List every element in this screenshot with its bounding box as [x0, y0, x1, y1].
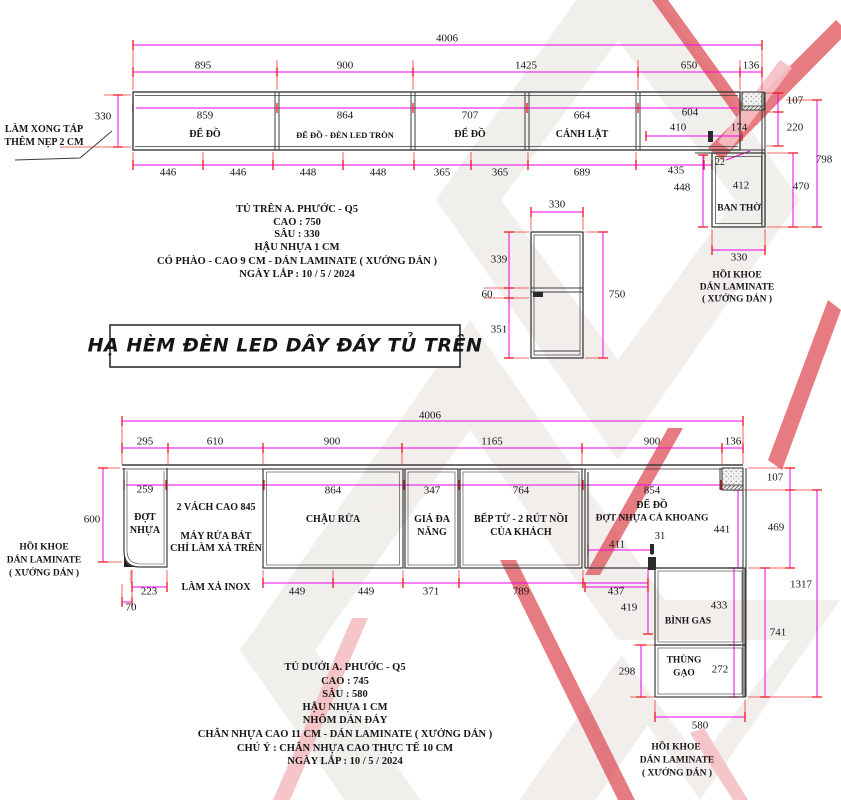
technical-drawing-canvas: 40068959001425650136330LÀM XONG TÁPTHÊM … — [0, 0, 841, 800]
altar-note-line3: ( XƯỞNG DÁN ) — [702, 295, 772, 305]
upper-dim-seg-5: 136 — [743, 61, 760, 72]
lower-comp4-name-line2: CỦA KHÁCH — [490, 528, 551, 538]
lower-comp5-width: 854 — [644, 486, 661, 497]
upper-comp3-width: 707 — [462, 111, 479, 122]
gas-dim-433: 433 — [711, 601, 728, 612]
upper-spec-line1: TỦ TRÊN A. PHƯỚC - Q5 — [236, 205, 358, 216]
lower-spec-line6: CHÂN NHỰA CAO 11 CM - DÁN LAMINATE ( XƯỞ… — [198, 730, 492, 741]
upper-dim-410: 410 — [670, 123, 687, 134]
side-cab-dim-60: 60 — [482, 290, 493, 301]
upper-bottom-dim-6: 365 — [492, 168, 509, 179]
upper-comp4-width: 664 — [574, 111, 591, 122]
lower-spec-line1: TỦ DƯỚI A. PHƯỚC - Q5 — [284, 663, 405, 674]
lower-dim-seg-6: 136 — [725, 437, 742, 448]
lower-dim-seg-2: 610 — [207, 437, 224, 448]
upper-note-line1: LÀM XONG TÁP — [5, 125, 83, 135]
lower-dim-total: 4006 — [419, 411, 441, 422]
lower-gap-note-line3: CHỈ LÀM XẢ TRÊN — [170, 544, 262, 554]
side-cab-dim-750: 750 — [609, 290, 626, 301]
lower-gap-note-line2: MÁY RỬA BÁT — [181, 532, 252, 542]
lower-comp4-width: 764 — [513, 486, 530, 497]
lower-bottom-dim-5: 437 — [608, 587, 625, 598]
lower-dim-600: 600 — [84, 515, 101, 526]
annotation-labels: 40068959001425650136330LÀM XONG TÁPTHÊM … — [0, 0, 841, 800]
lower-dim-seg-4: 1165 — [481, 437, 503, 448]
lower-spec-line5: NHÔM DÁN ĐÁY — [303, 716, 388, 727]
upper-note-line2: THÊM NẸP 2 CM — [4, 138, 83, 148]
gas-box-name: BÌNH GAS — [665, 617, 711, 627]
altar-dim-412: 412 — [733, 181, 750, 192]
lower-comp3-name-line2: NĂNG — [417, 528, 446, 538]
lower-comp1-width: 259 — [137, 485, 154, 496]
upper-dim-seg-1: 895 — [195, 61, 212, 72]
lower-dim-223: 223 — [141, 587, 158, 598]
altar-dim-330: 330 — [731, 253, 748, 264]
lower-right-dim-741: 741 — [770, 628, 787, 639]
lower-spec-line2: CAO : 745 — [321, 677, 369, 688]
altar-name: BAN THỜ — [717, 204, 760, 214]
upper-dim-seg-4: 650 — [681, 61, 698, 72]
upper-dim-total: 4006 — [436, 34, 458, 45]
upper-dim-22: 22 — [715, 158, 725, 168]
lower-right-dim-1317: 1317 — [790, 580, 812, 591]
upper-bottom-dim-3: 448 — [300, 168, 317, 179]
lower-bottom-dim-1: 449 — [289, 587, 306, 598]
lower-dim-580: 580 — [692, 721, 709, 732]
lower-spec-line4: HẬU NHỰA 1 CM — [302, 703, 387, 714]
upper-spec-line5: CÓ PHÀO - CAO 9 CM - DÁN LAMINATE ( XƯỞN… — [157, 257, 437, 268]
lower-comp4-name-line1: BẾP TỪ - 2 RÚT NỒI — [474, 515, 568, 525]
rice-box-name-line2: GẠO — [673, 669, 695, 679]
lower-left-note-line1: HỒI KHOE — [19, 543, 68, 553]
lower-comp2-name: CHẬU RỬA — [306, 515, 360, 525]
altar-note-line2: DÁN LAMINATE — [700, 283, 775, 293]
upper-spec-line2: CAO : 750 — [273, 218, 321, 229]
drawing-title: HẠ HÈM ĐÈN LED DÂY ĐÁY TỦ TRÊN — [88, 337, 483, 356]
lower-right-note-line2: DÁN LAMINATE — [640, 756, 715, 766]
upper-spec-line4: HẬU NHỰA 1 CM — [254, 243, 339, 254]
lower-bottom-dim-2: 449 — [358, 587, 375, 598]
lower-comp3-width: 347 — [424, 486, 441, 497]
upper-spec-line3: SÂU : 330 — [274, 230, 320, 241]
rice-dim-272: 272 — [712, 665, 729, 676]
lower-left-note-line3: ( XƯỞNG DÁN ) — [9, 569, 79, 579]
lower-dim-419: 419 — [621, 603, 638, 614]
lower-dim-seg-5: 900 — [644, 437, 661, 448]
rice-box-name-line1: THÙNG — [667, 656, 702, 666]
lower-right-note-line1: HỒI KHOE — [651, 743, 700, 753]
lower-comp1-name-line2: NHỰA — [130, 526, 160, 536]
side-cab-dim-339: 339 — [491, 255, 508, 266]
upper-bottom-dim-8: 435 — [668, 166, 685, 177]
side-cab-dim-351: 351 — [491, 325, 508, 336]
altar-note-line1: HỒI KHOE — [712, 271, 761, 281]
lower-bottom-dim-4: 789 — [513, 587, 530, 598]
lower-dim-seg-1: 295 — [137, 437, 154, 448]
lower-dim-411: 411 — [609, 540, 625, 551]
upper-comp1-name: ĐỂ ĐỒ — [189, 130, 220, 140]
upper-dim-height: 330 — [95, 112, 112, 123]
upper-right-dim-470: 470 — [793, 182, 810, 193]
lower-comp5-name-line2: ĐỢT NHỰA CẢ KHOANG — [596, 514, 709, 524]
upper-comp2-name: ĐỂ ĐỒ - ĐÈN LED TRÒN — [296, 131, 394, 140]
lower-dim-31: 31 — [655, 532, 666, 543]
upper-comp4-name: CÁNH LẬT — [556, 130, 609, 140]
upper-comp5-width: 604 — [682, 108, 699, 119]
upper-right-dim-798: 798 — [816, 155, 833, 166]
lower-right-note-line3: ( XƯỞNG DÁN ) — [642, 769, 712, 779]
upper-comp3-name: ĐỂ ĐỒ — [454, 130, 485, 140]
lower-dim-70: 70 — [126, 603, 137, 614]
lower-right-dim-107: 107 — [767, 473, 784, 484]
lower-left-note-line2: DÁN LAMINATE — [7, 556, 82, 566]
upper-right-dim-107: 107 — [787, 96, 804, 107]
lower-sink-note: LÀM XẢ INOX — [182, 583, 251, 593]
side-cab-dim-330: 330 — [549, 200, 566, 211]
upper-bottom-dim-2: 446 — [230, 168, 247, 179]
lower-dim-441: 441 — [714, 525, 731, 536]
lower-dim-seg-3: 900 — [324, 437, 341, 448]
upper-dim-seg-3: 1425 — [515, 61, 537, 72]
upper-dim-174: 174 — [731, 123, 748, 134]
upper-bottom-dim-1: 446 — [160, 168, 177, 179]
rice-dim-298: 298 — [619, 667, 636, 678]
lower-spec-line7: CHÚ Ý : CHÂN NHỰA CAO THỰC TẾ 10 CM — [237, 744, 453, 755]
lower-comp3-name-line1: GIÁ ĐA — [414, 515, 450, 525]
upper-comp1-width: 859 — [197, 111, 214, 122]
lower-spec-line8: NGÀY LẮP : 10 / 5 / 2024 — [287, 757, 402, 768]
lower-comp1-name-line1: ĐỢT — [134, 513, 156, 523]
upper-bottom-dim-4: 448 — [370, 168, 387, 179]
lower-bottom-dim-3: 371 — [423, 587, 440, 598]
lower-comp2-width: 864 — [325, 486, 342, 497]
lower-gap-note-line1: 2 VÁCH CAO 845 — [177, 503, 256, 513]
upper-bottom-dim-5: 365 — [434, 168, 451, 179]
upper-comp2-width: 864 — [337, 111, 354, 122]
lower-right-dim-469: 469 — [768, 523, 785, 534]
upper-bottom-dim-7: 689 — [574, 168, 591, 179]
altar-dim-448: 448 — [674, 183, 691, 194]
upper-right-dim-220: 220 — [787, 123, 804, 134]
upper-dim-seg-2: 900 — [337, 61, 354, 72]
lower-spec-line3: SÂU : 580 — [322, 690, 368, 701]
lower-comp5-name-line1: ĐỂ ĐỒ — [636, 501, 667, 511]
upper-spec-line6: NGÀY LẮP : 10 / 5 / 2024 — [239, 270, 354, 281]
